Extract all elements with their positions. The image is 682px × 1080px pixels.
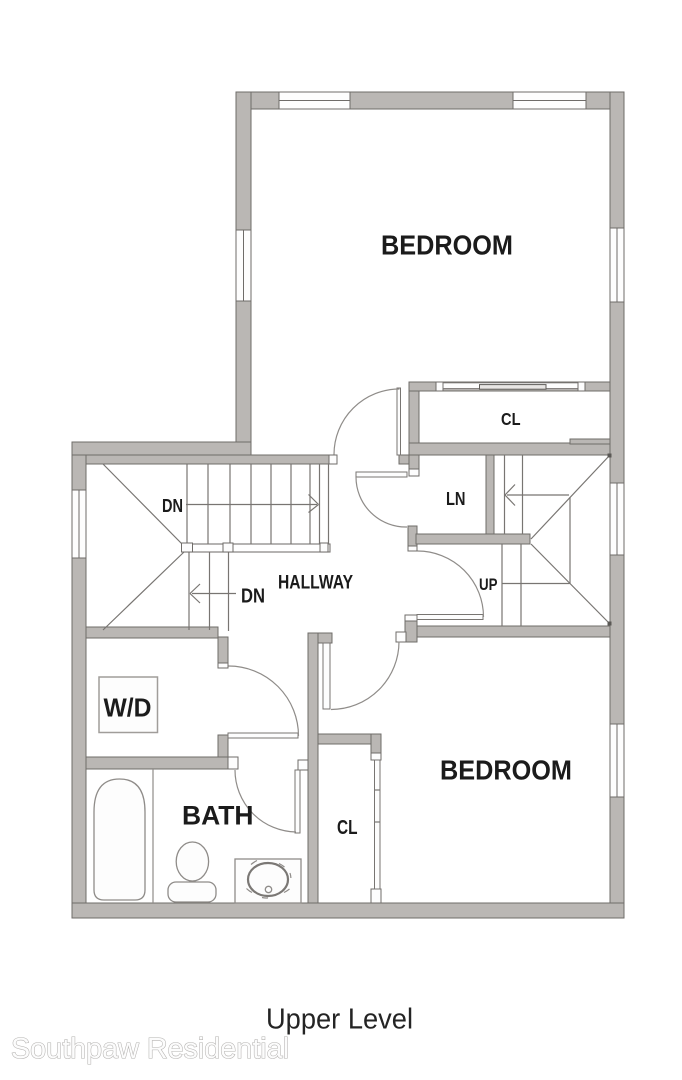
svg-text:LN: LN	[446, 489, 466, 509]
svg-text:CL: CL	[501, 409, 521, 429]
svg-text:BATH: BATH	[182, 801, 254, 831]
svg-text:HALLWAY: HALLWAY	[278, 573, 353, 594]
svg-text:Upper Level: Upper Level	[266, 1004, 413, 1036]
svg-text:DN: DN	[241, 586, 265, 608]
svg-text:CL: CL	[337, 817, 358, 839]
svg-text:BEDROOM: BEDROOM	[381, 230, 513, 261]
svg-text:UP: UP	[479, 575, 498, 594]
svg-text:DN: DN	[162, 496, 183, 516]
svg-text:W/D: W/D	[104, 693, 152, 723]
svg-text:Southpaw Residential: Southpaw Residential	[11, 1033, 289, 1065]
svg-text:BEDROOM: BEDROOM	[440, 755, 572, 786]
